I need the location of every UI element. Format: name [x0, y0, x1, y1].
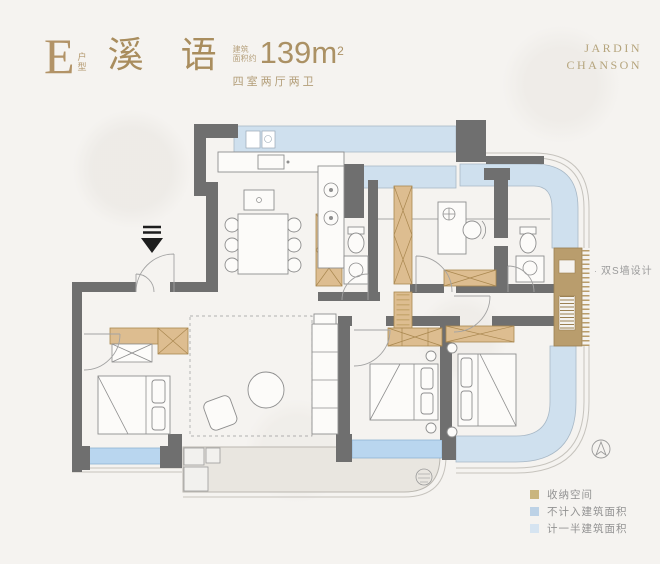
- brand-line1: JARDIN: [566, 40, 642, 57]
- area-label: 建筑 面积约: [233, 45, 257, 63]
- s-wall-annotation: ·双S墙设计: [594, 262, 653, 277]
- project-name: 溪 语: [108, 30, 231, 80]
- bullet-icon: ·: [594, 266, 598, 276]
- legend: 收纳空间 不计入建筑面积 计一半建筑面积: [530, 488, 628, 539]
- legend-item-excluded-area: 不计入建筑面积: [530, 505, 628, 517]
- storage-swatch-icon: [530, 490, 539, 499]
- excluded-area-swatch-icon: [530, 507, 539, 516]
- legend-item-storage: 收纳空间: [530, 488, 628, 500]
- brand-line2: CHANSON: [566, 57, 642, 74]
- unit-code: E: [44, 30, 75, 82]
- area-value: 139m2: [260, 36, 344, 70]
- header: E 户 型 溪 语 建筑 面积约 139m2 四室两厅两卫: [44, 30, 344, 89]
- floorplan-page: { "header": { "unit_code": "E", "unit_ty…: [0, 0, 660, 564]
- compass-icon: [592, 440, 610, 458]
- s-wall: [554, 248, 586, 346]
- area-group: 建筑 面积约 139m2 四室两厅两卫: [233, 36, 344, 89]
- legend-item-half-area: 计一半建筑面积: [530, 522, 628, 534]
- layout-spec: 四室两厅两卫: [233, 73, 344, 89]
- unit-type-label: 户 型: [78, 52, 88, 72]
- half-area-swatch-icon: [530, 524, 539, 533]
- entry-arrow-icon: [141, 227, 163, 253]
- brand-logo: JARDIN CHANSON: [566, 40, 642, 74]
